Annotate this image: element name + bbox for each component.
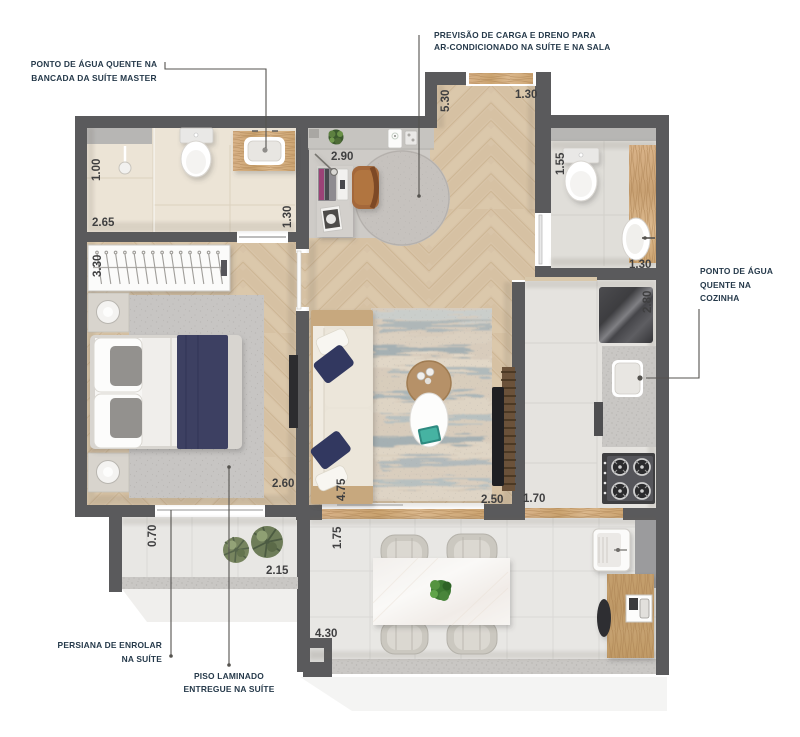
- svg-text:2.15: 2.15: [266, 565, 289, 577]
- svg-text:2.90: 2.90: [331, 151, 353, 163]
- svg-text:PONTO DE ÁGUA QUENTE NA: PONTO DE ÁGUA QUENTE NA: [31, 58, 158, 69]
- svg-text:1.30: 1.30: [515, 89, 537, 101]
- svg-text:4.30: 4.30: [315, 628, 337, 640]
- svg-text:0.70: 0.70: [147, 525, 159, 547]
- svg-text:3.30: 3.30: [92, 255, 104, 277]
- svg-text:PREVISÃO DE CARGA E DRENO PARA: PREVISÃO DE CARGA E DRENO PARA: [434, 30, 596, 40]
- svg-text:NA SUÍTE: NA SUÍTE: [122, 653, 163, 664]
- svg-text:BANCADA DA SUÍTE MASTER: BANCADA DA SUÍTE MASTER: [31, 72, 156, 83]
- svg-text:PONTO DE ÁGUA: PONTO DE ÁGUA: [700, 265, 773, 276]
- svg-text:1.70: 1.70: [523, 493, 545, 505]
- svg-text:2.80: 2.80: [642, 291, 654, 313]
- svg-text:1.30: 1.30: [629, 259, 651, 271]
- svg-text:2.60: 2.60: [272, 478, 294, 490]
- svg-text:COZINHA: COZINHA: [700, 293, 740, 303]
- svg-text:5.30: 5.30: [440, 90, 452, 112]
- svg-text:2.65: 2.65: [92, 217, 115, 229]
- svg-text:PISO LAMINADO: PISO LAMINADO: [194, 671, 264, 681]
- svg-text:1.75: 1.75: [332, 526, 344, 549]
- svg-text:PERSIANA DE ENROLAR: PERSIANA DE ENROLAR: [58, 640, 162, 650]
- svg-text:4.75: 4.75: [336, 478, 348, 501]
- svg-text:2.50: 2.50: [481, 494, 503, 506]
- svg-text:ENTREGUE NA SUÍTE: ENTREGUE NA SUÍTE: [183, 683, 274, 694]
- svg-text:1.00: 1.00: [91, 159, 103, 181]
- svg-text:AR-CONDICIONADO NA SUÍTE E NA: AR-CONDICIONADO NA SUÍTE E NA SALA: [434, 41, 610, 52]
- svg-text:1.30: 1.30: [282, 206, 294, 228]
- svg-text:QUENTE NA: QUENTE NA: [700, 280, 751, 290]
- svg-text:1.55: 1.55: [555, 152, 567, 175]
